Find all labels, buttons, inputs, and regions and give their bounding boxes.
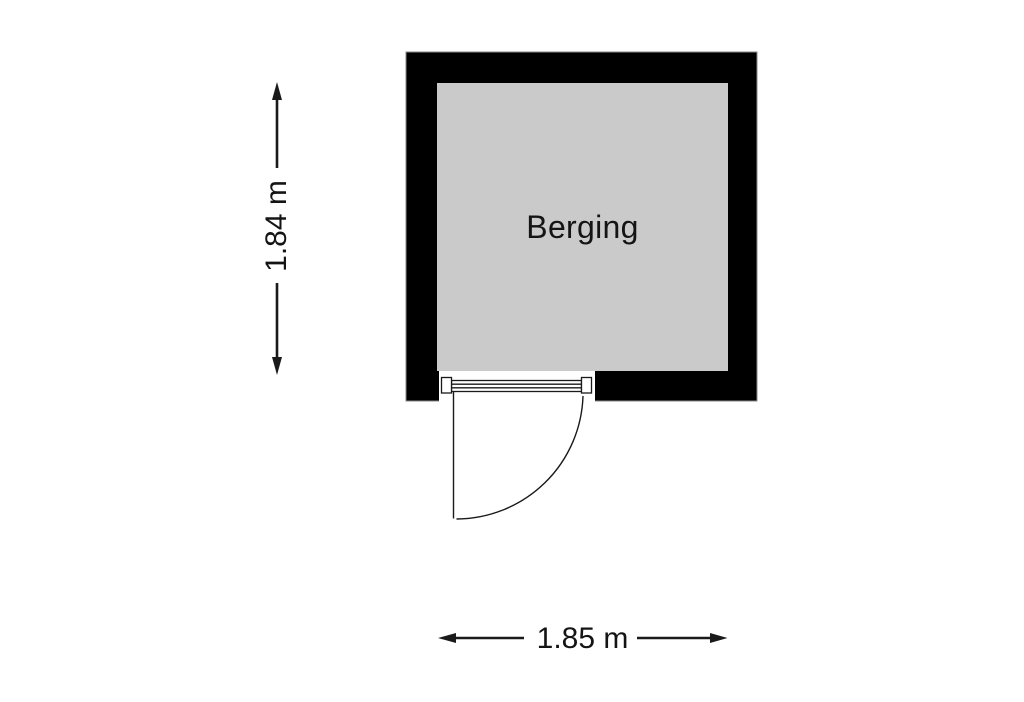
floorplan-drawing	[0, 0, 1024, 702]
vertical-dimension-arrow	[272, 82, 282, 375]
arrowhead-up-icon	[272, 82, 282, 100]
door-swing-arc	[457, 396, 584, 519]
door-threshold	[452, 381, 582, 392]
door-jamb-left	[442, 378, 452, 394]
horizontal-dimension-arrow	[438, 633, 728, 643]
arrowhead-left-icon	[438, 633, 456, 643]
arrowhead-right-icon	[710, 633, 728, 643]
arrowhead-down-icon	[272, 357, 282, 375]
room-floor	[437, 83, 728, 371]
floorplan-canvas: Berging 1.84 m 1.85 m	[0, 0, 1024, 702]
door-jamb-right	[582, 378, 592, 394]
